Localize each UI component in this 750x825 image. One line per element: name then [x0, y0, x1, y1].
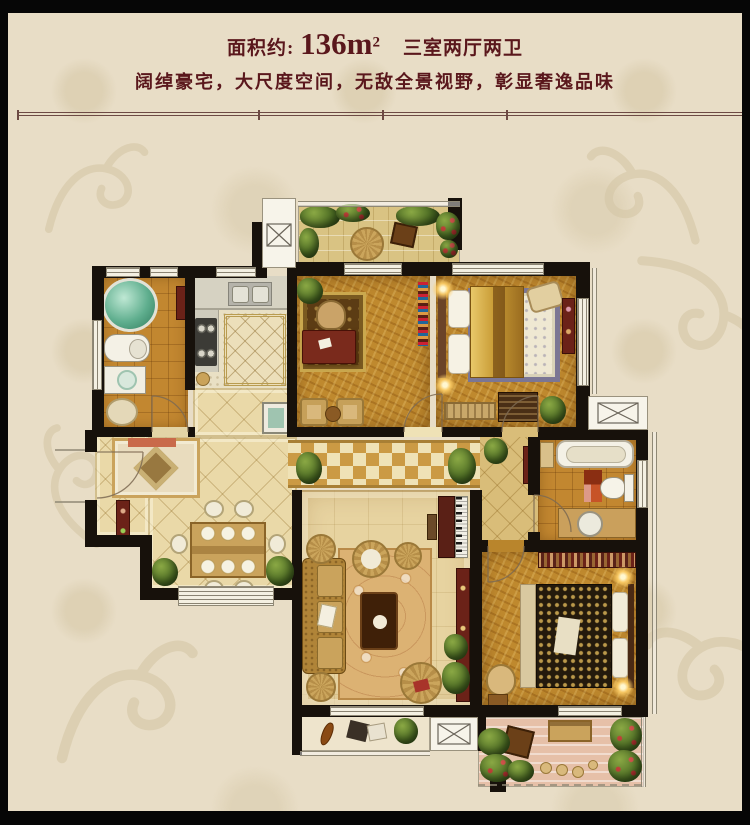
toilet	[104, 334, 150, 362]
window	[577, 298, 589, 386]
toilet-tank	[624, 474, 634, 502]
plant	[540, 396, 566, 424]
door-opening	[152, 427, 188, 437]
plant	[442, 662, 470, 694]
flower-pot	[540, 762, 552, 774]
room-config: 三室两厅两卫	[403, 38, 523, 59]
bookshelf	[418, 282, 428, 346]
kitchen-island	[224, 314, 286, 386]
pillow	[612, 638, 628, 678]
planter	[436, 212, 460, 240]
bed-bench	[444, 402, 496, 420]
plant	[608, 750, 642, 782]
door-opening	[502, 427, 538, 437]
pouf	[306, 672, 336, 702]
dining-table	[190, 522, 266, 578]
frame-bottom	[0, 811, 750, 825]
rule-line	[17, 112, 744, 116]
washer-door	[117, 370, 137, 390]
plant	[508, 760, 534, 782]
desk-chair	[316, 300, 346, 330]
planter	[299, 228, 319, 258]
rule-tick	[382, 110, 384, 120]
sofa-cushion	[317, 565, 343, 597]
wall	[185, 276, 195, 390]
damask-flourish	[20, 128, 170, 238]
dresser	[562, 298, 575, 354]
flower-pot	[572, 766, 584, 778]
exterior-line	[652, 432, 657, 714]
frame-right	[742, 0, 750, 825]
bedside-lamp	[612, 566, 634, 588]
bath-table	[106, 398, 138, 426]
balcony-door	[558, 706, 622, 716]
rule-tick	[258, 110, 260, 120]
window	[92, 320, 102, 390]
planter	[300, 206, 340, 228]
flower-pot	[440, 240, 458, 258]
door-opening	[488, 540, 524, 552]
side-table	[325, 406, 341, 422]
sofa-cushion	[317, 637, 343, 669]
plant	[478, 728, 510, 756]
sink-basin	[252, 286, 269, 303]
balcony-railing	[300, 751, 430, 756]
lounge-chair	[400, 662, 442, 704]
lounge-chair	[352, 540, 390, 578]
balcony-door	[330, 706, 424, 716]
rattan-chair	[350, 227, 384, 261]
ac-platform	[588, 396, 648, 430]
sink-basin	[232, 286, 249, 303]
wall	[528, 427, 540, 495]
chair-cushion	[361, 549, 381, 569]
piano-bench	[427, 514, 437, 540]
tagline: 阔绰豪宅，大尺度空间，无敌全景视野，彰显奢逸品味	[0, 68, 750, 94]
plant	[297, 278, 323, 304]
balcony-railing	[641, 717, 646, 787]
bedside-lamp	[432, 278, 454, 300]
ac-platform	[430, 717, 478, 751]
tray	[373, 615, 387, 629]
plant	[152, 558, 178, 586]
planter	[396, 206, 440, 226]
window	[150, 267, 178, 277]
cushion	[367, 723, 388, 742]
balcony-door	[344, 263, 402, 275]
piano-keys	[455, 496, 468, 558]
planter	[448, 448, 476, 484]
headboard	[628, 584, 634, 688]
coffee-table	[360, 592, 398, 650]
bedside-lamp	[434, 374, 456, 396]
bath-shelf	[540, 442, 554, 468]
toilet	[600, 474, 634, 502]
throw	[413, 678, 430, 692]
door-opening	[404, 427, 442, 437]
piano	[438, 496, 468, 558]
washer	[104, 366, 146, 394]
plant	[610, 718, 642, 752]
title-line: 面积约: 136m2三室两厅两卫	[0, 26, 750, 62]
toilet-bowl	[600, 477, 625, 499]
pillow	[612, 592, 628, 632]
vent-shaft	[262, 198, 296, 268]
vanity-sink	[577, 511, 603, 537]
bay-window	[178, 586, 274, 606]
sofa	[302, 558, 346, 674]
wardrobe	[498, 392, 538, 422]
wall	[636, 547, 648, 717]
dining-chair	[234, 500, 254, 518]
armchair	[486, 664, 516, 696]
hall-cabinet	[262, 402, 290, 434]
dining-chair	[268, 534, 286, 554]
balcony-railing	[298, 201, 460, 207]
cabinet-glass	[268, 408, 284, 428]
wall	[287, 262, 297, 437]
wall	[287, 262, 590, 276]
medallion	[133, 445, 178, 490]
dining-chair	[170, 534, 188, 554]
rug-fringe	[128, 438, 176, 447]
plant	[394, 718, 418, 744]
floorplan-poster: 面积约: 136m2三室两厅两卫 阔绰豪宅，大尺度空间，无敌全景视野，彰显奢逸品…	[0, 0, 750, 825]
wall	[292, 490, 302, 717]
vanity	[558, 508, 636, 538]
flower-pot	[556, 764, 568, 776]
foot-bench	[520, 584, 536, 688]
piano-body	[438, 496, 455, 558]
plant	[484, 438, 508, 464]
exterior-line	[592, 268, 597, 394]
planter	[296, 452, 322, 484]
window	[216, 267, 256, 277]
flower-pot	[588, 760, 598, 770]
kitchen-sink	[228, 282, 272, 306]
wall	[292, 717, 302, 755]
damask-flourish	[30, 620, 220, 770]
bench	[548, 720, 592, 742]
shower	[102, 278, 158, 332]
area-label: 面积约:	[227, 38, 294, 59]
wall	[85, 500, 97, 547]
bathtub	[556, 440, 634, 468]
kitchen-stool	[196, 372, 210, 386]
area-exponent: 2	[372, 35, 381, 51]
area-value: 136m	[300, 26, 372, 61]
header: 面积约: 136m2三室两厅两卫 阔绰豪宅，大尺度空间，无敌全景视野，彰显奢逸品…	[0, 26, 750, 94]
damask-flourish	[630, 230, 750, 381]
tub-basin	[566, 446, 626, 463]
dining-chair	[204, 500, 224, 518]
foyer-rug	[112, 438, 200, 498]
double-bed	[438, 286, 524, 378]
wall	[470, 490, 482, 717]
side-table	[394, 542, 422, 570]
desk	[302, 330, 356, 364]
window	[452, 263, 544, 275]
duvet	[470, 286, 524, 378]
pouf	[306, 534, 336, 564]
toilet-lid	[129, 339, 147, 359]
stove	[195, 318, 217, 366]
pillow	[448, 334, 470, 374]
window	[106, 267, 140, 277]
rule-tick	[506, 110, 508, 120]
wall	[85, 430, 97, 452]
bedside-lamp	[612, 676, 634, 698]
window	[637, 460, 648, 508]
armchair	[300, 398, 328, 426]
damask-flourish	[560, 130, 730, 250]
plant	[266, 556, 294, 586]
frame-left	[0, 0, 8, 825]
master-bed	[520, 584, 634, 688]
paper	[318, 338, 332, 350]
rule-tick	[17, 110, 19, 120]
plant	[444, 634, 468, 660]
frame-top	[0, 0, 750, 13]
